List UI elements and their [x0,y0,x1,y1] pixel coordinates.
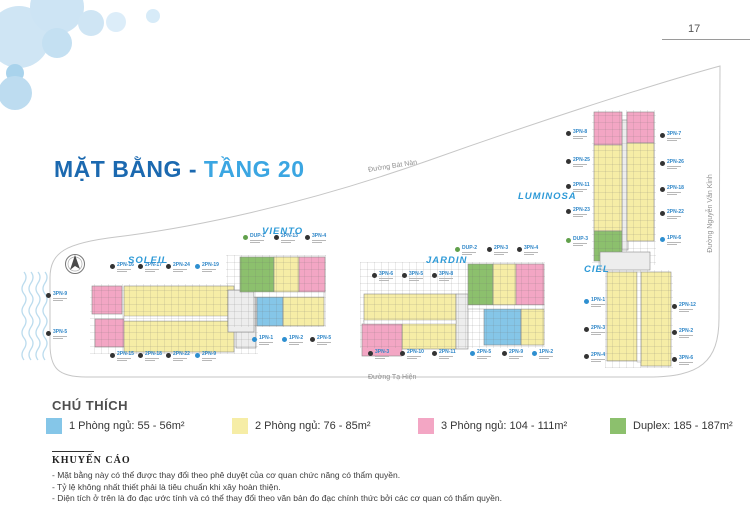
unit-area-line [117,271,127,272]
unit-callout-1PN-2: 1PN-2 [532,350,553,359]
unit-callout-2PN-15: 2PN-15 [110,352,134,361]
unit-code: 2PN-18 [667,186,684,191]
unit-badge-icon [455,247,460,252]
unit-code: 3PN-4 [524,246,538,251]
legend-label-2br: 2 Phòng ngủ: 76 - 85m² [255,420,371,432]
unit-badge-icon [660,133,665,138]
unit-code: 2PN-22 [667,210,684,215]
unit-badge-icon [660,237,665,242]
unit-area-line [591,332,605,333]
legend-item-2br: 2 Phòng ngủ: 76 - 85m² [232,418,371,434]
unit-area-line [202,358,216,359]
unit-area-line [250,242,260,243]
unit-badge-icon [660,161,665,166]
unit-callout-2PN-3: 2PN-3 [584,326,605,335]
unit-area-line [667,166,681,167]
unit-badge-icon [566,238,571,243]
legend-item-1br: 1 Phòng ngủ: 55 - 56m² [46,418,185,434]
unit-badge-icon [252,337,257,342]
unit-callout-2PN-16: 2PN-16 [110,263,134,272]
unit-area-line [312,242,322,243]
advisory-line: - Tỷ lệ không nhất thiết phải là tiêu ch… [52,482,692,494]
legend-swatch-duplex [610,418,626,434]
unit-area-line [667,138,681,139]
unit-area-line [524,252,538,253]
unit-callout-3PN-5: 3PN-5 [402,272,423,281]
unit-callout-2PN-13: 2PN-13 [274,234,298,243]
unit-area-line [573,216,583,217]
unit-area-line [591,306,601,307]
unit-area-line [539,356,553,357]
legend-label-duplex: Duplex: 185 - 187m² [633,420,733,432]
unit-code: 2PN-17 [145,263,162,268]
unit-callout-2PN-26: 2PN-26 [660,160,684,169]
unit-code: 1PN-1 [259,336,273,341]
unit-area-line [667,244,677,245]
unit-callout-2PN-2: 2PN-2 [672,329,693,338]
unit-area-line [145,271,155,272]
unit-callout-2PN-11: 2PN-11 [566,183,590,192]
building-label-ciel: CIEL [584,264,610,275]
unit-area-line [667,194,677,195]
unit-area-line [439,358,449,359]
unit-area-line [679,362,693,363]
unit-code: 3PN-8 [573,130,587,135]
unit-callout-2PN-18: 2PN-18 [660,186,684,195]
unit-area-line [312,240,326,241]
unit-area-line [375,358,385,359]
unit-area-line [173,269,187,270]
unit-callout-2PN-24: 2PN-24 [166,263,190,272]
unit-code: 2PN-24 [173,263,190,268]
unit-badge-icon [672,357,677,362]
unit-code: 2PN-3 [591,326,605,331]
brochure-page: 17 MẶT BẰNG - TẦNG 20 [0,0,750,530]
unit-area-line [259,344,269,345]
unit-code: DUP-1 [250,234,265,239]
unit-area-line [379,278,393,279]
unit-area-line [173,358,187,359]
unit-area-line [173,271,183,272]
unit-area-line [679,311,689,312]
unit-code: 2PN-5 [477,350,491,355]
building-ciel [600,252,673,368]
unit-area-line [53,300,63,301]
unit-code: 2PN-25 [573,158,590,163]
unit-area-line [407,358,417,359]
unit-area-line [667,168,677,169]
unit-badge-icon [310,337,315,342]
unit-badge-icon [566,184,571,189]
unit-area-line [53,336,67,337]
unit-badge-icon [432,273,437,278]
legend-swatch-2br [232,418,248,434]
unit-callout-DUP-1: DUP-1 [243,234,265,243]
unit-callout-3PN-3: 3PN-3 [368,350,389,359]
unit-badge-icon [195,353,200,358]
unit-badge-icon [282,337,287,342]
unit-badge-icon [502,351,507,356]
unit-area-line [679,337,689,338]
unit-area-line [591,361,601,362]
unit-area-line [259,342,273,343]
building-label-luminosa: LUMINOSA [518,191,577,202]
unit-code: 2PN-23 [573,208,590,213]
legend-swatch-3br [418,418,434,434]
unit-area-line [524,254,534,255]
unit-callout-2PN-4: 2PN-4 [584,353,605,362]
unit-area-line [407,356,421,357]
unit-code: 2PN-18 [145,352,162,357]
unit-callout-1PN-1: 1PN-1 [584,298,605,307]
unit-callout-2PN-22: 2PN-22 [166,352,190,361]
unit-callout-3PN-6: 3PN-6 [372,272,393,281]
unit-callout-2PN-19: 2PN-19 [195,263,219,272]
unit-callout-DUP-3: DUP-3 [566,237,588,246]
unit-area-line [573,214,587,215]
unit-area-line [573,191,583,192]
unit-code: 1PN-2 [289,336,303,341]
unit-badge-icon [402,273,407,278]
unit-area-line [462,254,472,255]
unit-area-line [289,342,303,343]
unit-area-line [409,280,419,281]
unit-area-line [281,240,295,241]
advisory-line: - Diện tích ở trên là đo đạc ước tính và… [52,493,692,505]
unit-badge-icon [672,330,677,335]
unit-callout-2PN-5: 2PN-5 [470,350,491,359]
unit-area-line [667,192,681,193]
unit-area-line [573,164,587,165]
unit-callout-2PN-9: 2PN-9 [502,350,523,359]
unit-callout-3PN-7: 3PN-7 [660,132,681,141]
building-label-jardin: JARDIN [426,255,467,266]
unit-code: 2PN-16 [117,263,134,268]
unit-code: 3PN-6 [679,356,693,361]
legend-label-3br: 3 Phòng ngủ: 104 - 111m² [441,420,567,432]
unit-area-line [379,280,389,281]
unit-area-line [539,358,549,359]
unit-badge-icon [517,247,522,252]
unit-area-line [202,360,212,361]
unit-code: 3PN-5 [53,330,67,335]
unit-callout-2PN-5: 2PN-5 [310,336,331,345]
unit-badge-icon [138,264,143,269]
street-label-ta-hien: Đường Tạ Hiện [368,374,416,381]
unit-code: 2PN-3 [494,246,508,251]
unit-code: 3PN-3 [375,350,389,355]
street-label-nguyen-van-kinh: Đường Nguyễn Văn Kỉnh [707,151,714,276]
unit-code: 2PN-2 [679,329,693,334]
unit-code: 2PN-9 [509,350,523,355]
unit-callout-1PN-2: 1PN-2 [282,336,303,345]
unit-area-line [667,140,677,141]
unit-area-line [250,240,264,241]
unit-callout-1PN-6: 1PN-6 [660,236,681,245]
unit-area-line [289,344,299,345]
unit-area-line [145,360,155,361]
unit-callout-2PN-17: 2PN-17 [138,263,162,272]
unit-code: 2PN-22 [173,352,190,357]
unit-callout-2PN-3: 2PN-3 [487,246,508,255]
unit-callout-2PN-23: 2PN-23 [566,208,590,217]
unit-badge-icon [584,299,589,304]
unit-badge-icon [166,264,171,269]
unit-badge-icon [432,351,437,356]
unit-callout-DUP-2: DUP-2 [455,246,477,255]
unit-area-line [202,269,216,270]
advisory-rule [52,451,94,452]
unit-badge-icon [584,327,589,332]
unit-callout-3PN-4: 3PN-4 [305,234,326,243]
unit-code: 2PN-9 [202,352,216,357]
unit-code: 3PN-8 [439,272,453,277]
unit-badge-icon [274,235,279,240]
building-viento [226,255,326,332]
unit-area-line [53,338,63,339]
unit-area-line [573,166,583,167]
unit-code: 2PN-15 [117,352,134,357]
unit-callout-2PN-9: 2PN-9 [195,352,216,361]
unit-code: DUP-2 [462,246,477,251]
unit-code: 3PN-7 [667,132,681,137]
legend-heading: CHÚ THÍCH [52,398,128,413]
unit-callout-2PN-22: 2PN-22 [660,210,684,219]
unit-badge-icon [195,264,200,269]
water-waves [22,272,47,360]
unit-area-line [667,216,681,217]
unit-callout-2PN-12: 2PN-12 [672,303,696,312]
unit-area-line [509,356,523,357]
unit-area-line [462,252,476,253]
unit-badge-icon [110,353,115,358]
unit-area-line [439,278,453,279]
unit-area-line [439,356,453,357]
unit-area-line [573,136,587,137]
unit-badge-icon [110,264,115,269]
unit-area-line [667,218,677,219]
unit-badge-icon [368,351,373,356]
unit-code: 3PN-6 [379,272,393,277]
unit-badge-icon [660,211,665,216]
unit-area-line [679,335,693,336]
unit-code: 2PN-26 [667,160,684,165]
unit-code: 2PN-4 [591,353,605,358]
unit-code: 3PN-9 [53,292,67,297]
unit-badge-icon [470,351,475,356]
unit-badge-icon [138,353,143,358]
unit-callout-3PN-4: 3PN-4 [517,246,538,255]
unit-callout-2PN-18: 2PN-18 [138,352,162,361]
compass-icon [66,255,85,274]
unit-area-line [509,358,519,359]
unit-badge-icon [584,354,589,359]
advisory-section: KHUYẾN CÁO - Mặt bằng này có thể được th… [52,451,692,505]
unit-code: 2PN-19 [202,263,219,268]
unit-code: 2PN-5 [317,336,331,341]
unit-area-line [591,304,605,305]
unit-callout-2PN-25: 2PN-25 [566,158,590,167]
unit-badge-icon [487,247,492,252]
unit-callout-3PN-6: 3PN-6 [672,356,693,365]
unit-area-line [53,298,67,299]
unit-badge-icon [166,353,171,358]
unit-code: 1PN-6 [667,236,681,241]
legend-label-1br: 1 Phòng ngủ: 55 - 56m² [69,420,185,432]
unit-code: DUP-3 [573,237,588,242]
unit-code: 2PN-13 [281,234,298,239]
unit-area-line [117,269,131,270]
unit-badge-icon [566,159,571,164]
unit-area-line [494,252,508,253]
unit-area-line [173,360,183,361]
unit-area-line [679,309,693,310]
unit-badge-icon [660,187,665,192]
unit-area-line [591,359,605,360]
unit-callout-3PN-8: 3PN-8 [566,130,587,139]
unit-badge-icon [46,293,51,298]
unit-callout-1PN-1: 1PN-1 [252,336,273,345]
unit-code: 2PN-11 [439,350,456,355]
unit-area-line [573,189,587,190]
unit-code: 2PN-12 [679,303,696,308]
unit-badge-icon [400,351,405,356]
unit-area-line [591,334,601,335]
unit-badge-icon [305,235,310,240]
advisory-line: - Mặt bằng này có thể được thay đổi theo… [52,470,692,482]
unit-area-line [409,278,423,279]
legend-item-3br: 3 Phòng ngủ: 104 - 111m² [418,418,567,434]
unit-callout-3PN-5: 3PN-5 [46,330,67,339]
unit-badge-icon [672,304,677,309]
unit-area-line [573,243,587,244]
legend-swatch-1br [46,418,62,434]
unit-badge-icon [566,209,571,214]
unit-callout-3PN-8: 3PN-8 [432,272,453,281]
unit-area-line [375,356,389,357]
unit-code: 2PN-11 [573,183,590,188]
unit-badge-icon [532,351,537,356]
unit-badge-icon [372,273,377,278]
unit-area-line [317,342,331,343]
building-luminosa [592,110,656,265]
unit-callout-3PN-9: 3PN-9 [46,292,67,301]
unit-area-line [281,242,291,243]
unit-code: 3PN-4 [312,234,326,239]
unit-code: 3PN-5 [409,272,423,277]
unit-area-line [679,364,689,365]
legend-item-duplex: Duplex: 185 - 187m² [610,418,733,434]
unit-badge-icon [46,331,51,336]
unit-area-line [667,242,681,243]
unit-area-line [145,269,159,270]
unit-code: 2PN-10 [407,350,424,355]
unit-area-line [573,138,583,139]
unit-badge-icon [243,235,248,240]
unit-badge-icon [566,131,571,136]
unit-callout-2PN-11: 2PN-11 [432,350,456,359]
unit-area-line [573,245,583,246]
unit-area-line [477,356,491,357]
unit-area-line [202,271,212,272]
unit-code: 1PN-1 [591,298,605,303]
unit-area-line [117,358,131,359]
unit-code: 1PN-2 [539,350,553,355]
unit-callout-2PN-10: 2PN-10 [400,350,424,359]
unit-area-line [477,358,487,359]
advisory-heading: KHUYẾN CÁO [52,455,692,466]
unit-area-line [494,254,504,255]
unit-area-line [317,344,327,345]
unit-area-line [439,280,449,281]
unit-area-line [117,360,127,361]
unit-area-line [145,358,159,359]
